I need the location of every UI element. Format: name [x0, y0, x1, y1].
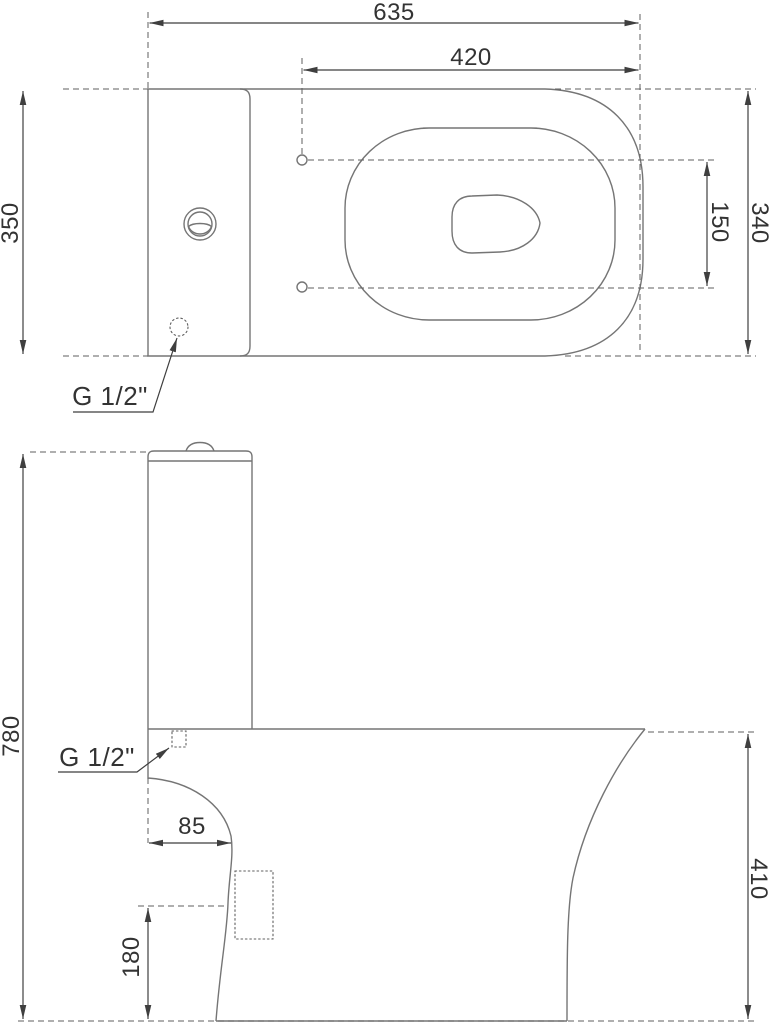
hinge-hole-bottom — [297, 282, 307, 292]
hinge-hole-top — [297, 155, 307, 165]
plan-body-outline — [148, 89, 643, 356]
dim-label-180: 180 — [120, 936, 144, 978]
plan-extension-lines — [63, 12, 756, 356]
inlet-hole-plan — [170, 318, 188, 336]
plan-dimension-lines — [23, 23, 748, 412]
side-flush-button — [186, 443, 214, 452]
plan-seat-ring — [345, 128, 615, 320]
inlet-label-plan: G 1/2" — [72, 383, 148, 409]
dim-label-150: 150 — [707, 201, 731, 243]
flush-button-plan — [184, 208, 216, 240]
dim-label-410: 410 — [746, 858, 770, 900]
side-bowl-back-curve — [567, 729, 645, 1021]
side-view — [18, 443, 756, 1022]
dim-label-635: 635 — [373, 1, 415, 25]
side-cistern — [148, 451, 252, 729]
drawing-canvas — [0, 0, 772, 1024]
inlet-connection-side — [172, 731, 186, 747]
side-bowl-front-curve — [148, 729, 232, 1021]
waste-outlet-side — [235, 871, 273, 939]
dim-label-350: 350 — [0, 202, 23, 244]
toilet-dimension-drawing: 635 420 350 340 150 G 1/2" 780 G 1/2" 85… — [0, 0, 772, 1024]
dim-label-780: 780 — [0, 715, 24, 757]
plan-bowl-opening — [452, 195, 540, 253]
plan-cistern-edge — [240, 89, 250, 356]
dim-label-420: 420 — [450, 46, 492, 70]
inlet-label-side: G 1/2" — [59, 744, 135, 770]
dim-label-340: 340 — [747, 202, 771, 244]
dim-label-85: 85 — [178, 815, 206, 839]
plan-view — [23, 12, 756, 412]
